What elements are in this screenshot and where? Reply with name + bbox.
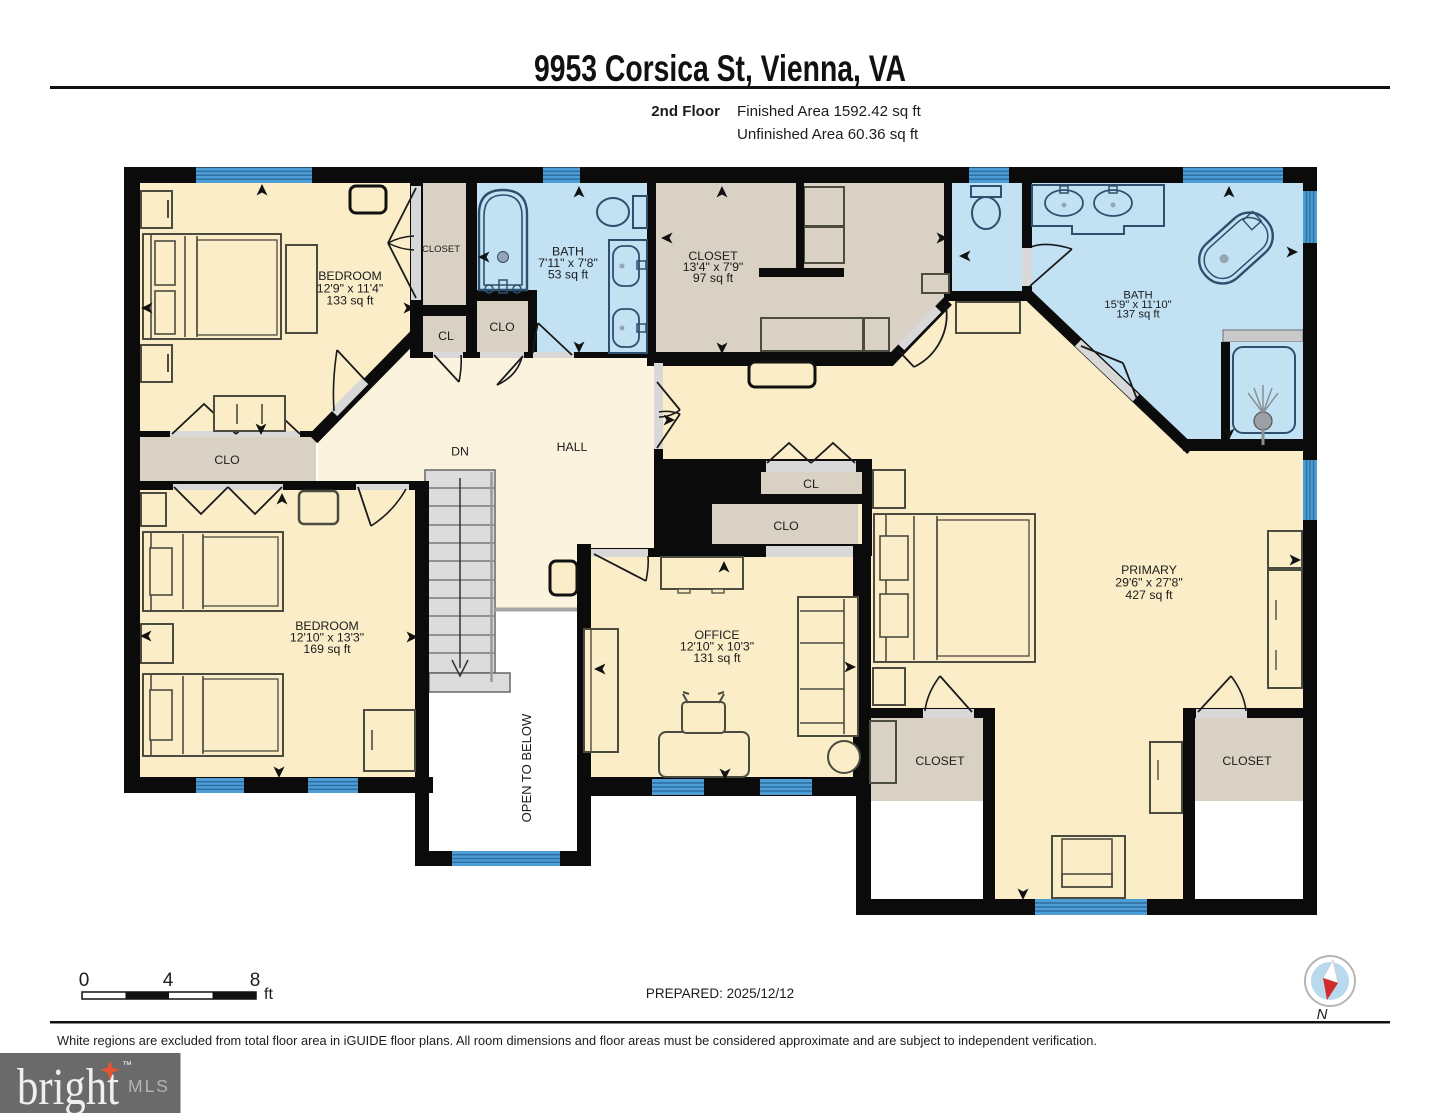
svg-text:DN: DN: [451, 445, 469, 459]
svg-text:Unfinished Area 60.36 sq ft: Unfinished Area 60.36 sq ft: [737, 126, 919, 143]
svg-text:White regions are excluded fro: White regions are excluded from total fl…: [57, 1033, 1097, 1048]
svg-text:0: 0: [79, 970, 90, 991]
svg-text:131 sq ft: 131 sq ft: [693, 651, 741, 665]
svg-text:CL: CL: [438, 329, 454, 343]
svg-text:CLO: CLO: [773, 519, 798, 533]
svg-text:9953 Corsica St, Vienna, VA: 9953 Corsica St, Vienna, VA: [534, 47, 906, 89]
svg-text:ft: ft: [264, 986, 273, 1003]
svg-text:CLO: CLO: [214, 453, 239, 467]
svg-text:HALL: HALL: [557, 440, 588, 454]
svg-text:427 sq ft: 427 sq ft: [1125, 588, 1173, 602]
svg-text:CLO: CLO: [489, 320, 514, 334]
svg-text:™: ™: [122, 1060, 132, 1071]
svg-text:97 sq ft: 97 sq ft: [693, 271, 734, 285]
svg-text:CLOSET: CLOSET: [422, 244, 460, 255]
svg-text:Finished Area 1592.42 sq ft: Finished Area 1592.42 sq ft: [737, 103, 922, 120]
svg-text:OPEN TO BELOW: OPEN TO BELOW: [519, 713, 534, 822]
svg-text:CLOSET: CLOSET: [1222, 754, 1272, 768]
svg-text:133 sq ft: 133 sq ft: [326, 294, 374, 308]
svg-text:N: N: [1317, 1006, 1328, 1023]
svg-text:MLS: MLS: [128, 1076, 170, 1096]
svg-text:bright: bright: [17, 1059, 119, 1113]
svg-text:4: 4: [163, 970, 174, 991]
svg-text:PREPARED: 2025/12/12: PREPARED: 2025/12/12: [646, 986, 794, 1001]
svg-text:CL: CL: [803, 477, 819, 491]
svg-text:2nd Floor: 2nd Floor: [651, 103, 720, 120]
svg-text:169 sq ft: 169 sq ft: [303, 642, 351, 656]
svg-text:8: 8: [250, 970, 261, 991]
svg-text:CLOSET: CLOSET: [915, 754, 965, 768]
svg-text:53 sq ft: 53 sq ft: [548, 268, 589, 282]
svg-text:137 sq ft: 137 sq ft: [1116, 309, 1160, 321]
